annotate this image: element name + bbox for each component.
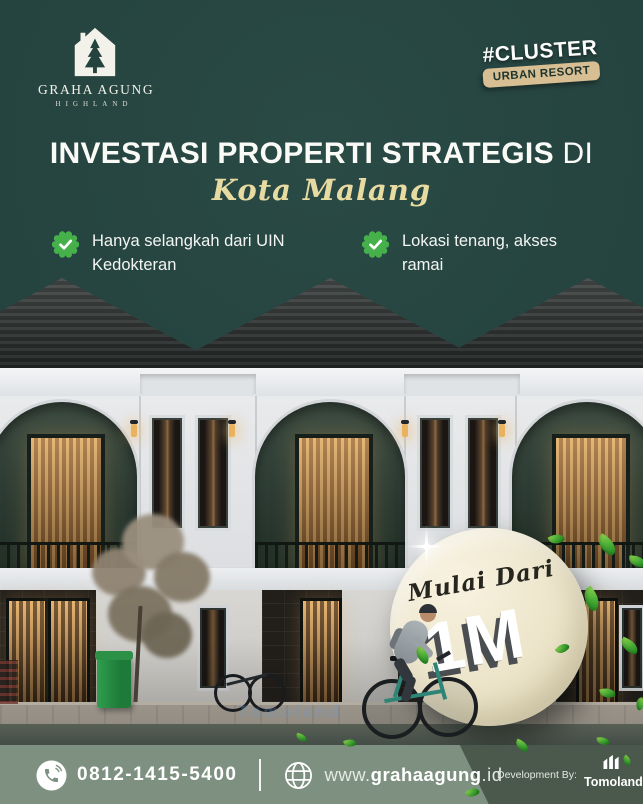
wall-lamp xyxy=(131,424,137,437)
headline: INVESTASI PROPERTI STRATEGIS DI Kota Mal… xyxy=(0,138,643,207)
development-by-label: Development By: xyxy=(497,769,577,781)
headline-script: Kota Malang xyxy=(0,173,643,207)
building-icon xyxy=(600,752,624,769)
contact-row: 0812-1415-5400 www.grahaagung.id xyxy=(36,759,503,791)
house-pine-icon xyxy=(71,26,117,78)
wall-lamp xyxy=(402,424,408,437)
feature-item: Hanya selangkah dari UIN Kedokteran xyxy=(52,230,314,278)
cluster-badge: #CLUSTER URBAN RESORT xyxy=(480,36,600,88)
headline-regular: DI xyxy=(563,137,594,170)
brand-tagline: HIGHLAND xyxy=(38,100,150,108)
arch-window-middle xyxy=(255,402,405,568)
promo-poster: Tomoland GRAHA AGUNG HIGHLAND #CLUSTER U… xyxy=(0,0,643,804)
headline-main: INVESTASI PROPERTI STRATEGIS DI xyxy=(0,138,643,170)
brand-name: GRAHA AGUNG xyxy=(38,82,150,98)
street-tree xyxy=(80,510,210,710)
website-link[interactable]: www.grahaagung.id xyxy=(324,764,502,786)
feature-text: Lokasi tenang, akses ramai xyxy=(402,230,588,278)
footer-bar: 0812-1415-5400 www.grahaagung.id Develop… xyxy=(0,745,643,804)
check-badge-icon xyxy=(52,231,79,258)
wall-lamp xyxy=(499,424,505,437)
developer-logo: Tomoland xyxy=(584,752,640,789)
photo-watermark: Tomoland xyxy=(238,702,342,722)
brand-logo: GRAHA AGUNG HIGHLAND xyxy=(38,26,150,108)
parked-bicycle-red xyxy=(0,660,18,704)
feature-text: Hanya selangkah dari UIN Kedokteran xyxy=(92,230,314,278)
footer-divider xyxy=(259,759,261,791)
headline-bold: INVESTASI PROPERTI STRATEGIS xyxy=(50,137,554,170)
wall-lamp xyxy=(229,424,235,437)
cornice-band xyxy=(0,368,643,396)
sparkle-icon xyxy=(406,526,446,566)
globe-icon xyxy=(283,760,314,791)
check-badge-icon xyxy=(362,231,389,258)
phone-number[interactable]: 0812-1415-5400 xyxy=(77,764,237,786)
phone-icon xyxy=(36,760,67,791)
developer-name: Tomoland xyxy=(584,775,640,789)
roof-right xyxy=(414,278,643,372)
feature-item: Lokasi tenang, akses ramai xyxy=(362,230,588,278)
